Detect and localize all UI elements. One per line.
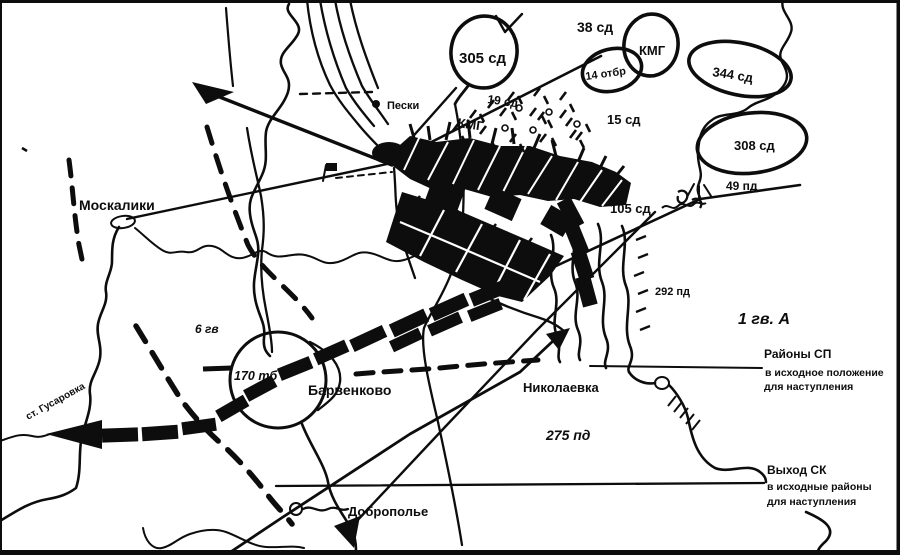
svg-text:49 пд: 49 пд bbox=[726, 179, 758, 193]
svg-text:Барвенково: Барвенково bbox=[308, 382, 391, 398]
svg-text:КМГ: КМГ bbox=[639, 43, 666, 58]
svg-text:Доброполье: Доброполье bbox=[348, 504, 428, 519]
svg-text:1 гв. А: 1 гв. А bbox=[738, 311, 790, 328]
svg-text:для наступления: для наступления bbox=[767, 496, 856, 508]
svg-text:308 сд: 308 сд bbox=[734, 138, 776, 153]
svg-text:для наступления: для наступления bbox=[764, 381, 853, 393]
svg-text:6 гв: 6 гв bbox=[195, 322, 219, 336]
svg-text:в исходное положение: в исходное положение bbox=[765, 367, 884, 379]
svg-text:305 сд: 305 сд bbox=[459, 50, 507, 67]
svg-text:Районы СП: Районы СП bbox=[764, 347, 831, 361]
svg-text:Выход СК: Выход СК bbox=[767, 463, 827, 477]
svg-text:275 пд: 275 пд bbox=[545, 427, 591, 443]
svg-text:170 тб: 170 тб bbox=[234, 369, 278, 383]
svg-text:15 сд: 15 сд bbox=[607, 112, 641, 127]
svg-text:Пески: Пески bbox=[387, 100, 419, 112]
svg-text:38 сд: 38 сд bbox=[577, 19, 613, 35]
svg-text:292 пд: 292 пд bbox=[655, 286, 690, 298]
svg-text:Москалики: Москалики bbox=[79, 197, 155, 213]
svg-text:Николаевка: Николаевка bbox=[523, 380, 600, 395]
svg-text:в исходные районы: в исходные районы bbox=[767, 481, 872, 493]
svg-text:105 сд: 105 сд bbox=[610, 201, 652, 216]
